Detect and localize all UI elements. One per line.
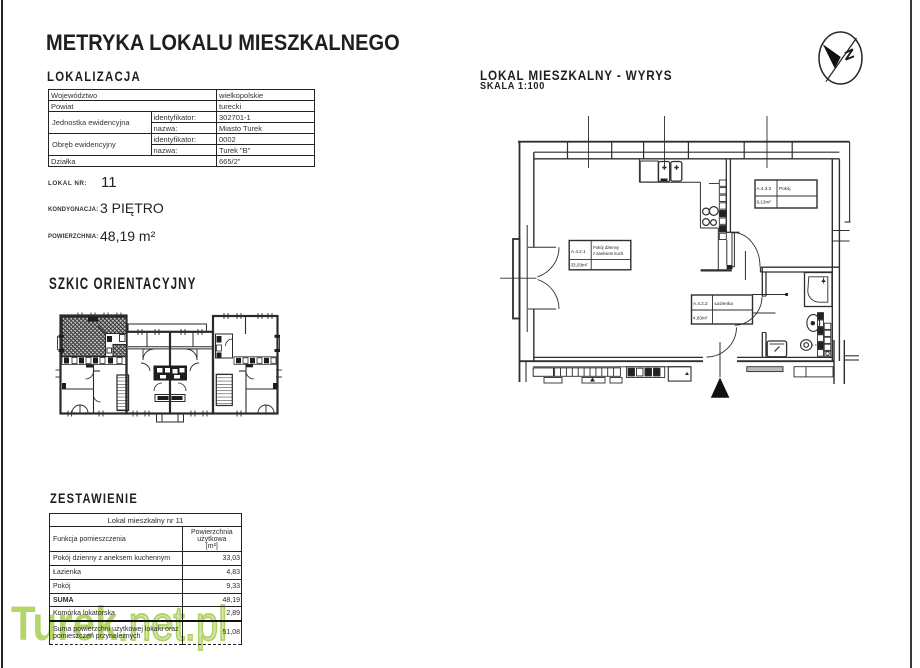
svg-text:Łazienka: Łazienka bbox=[715, 301, 734, 306]
svg-text:A.4.3.3: A.4.3.3 bbox=[757, 186, 772, 191]
svg-text:4,83m²: 4,83m² bbox=[693, 316, 708, 321]
svg-text:9,13m²: 9,13m² bbox=[757, 200, 772, 205]
svg-text:z aneksem kuch.: z aneksem kuch. bbox=[593, 251, 624, 256]
svg-text:Pokój dzienny: Pokój dzienny bbox=[593, 245, 620, 250]
svg-text:A.4.2.2: A.4.2.2 bbox=[693, 301, 708, 306]
svg-text:33,03m²: 33,03m² bbox=[571, 263, 588, 268]
svg-text:Pokój: Pokój bbox=[779, 186, 791, 191]
svg-text:A.4.2.1: A.4.2.1 bbox=[571, 249, 586, 254]
